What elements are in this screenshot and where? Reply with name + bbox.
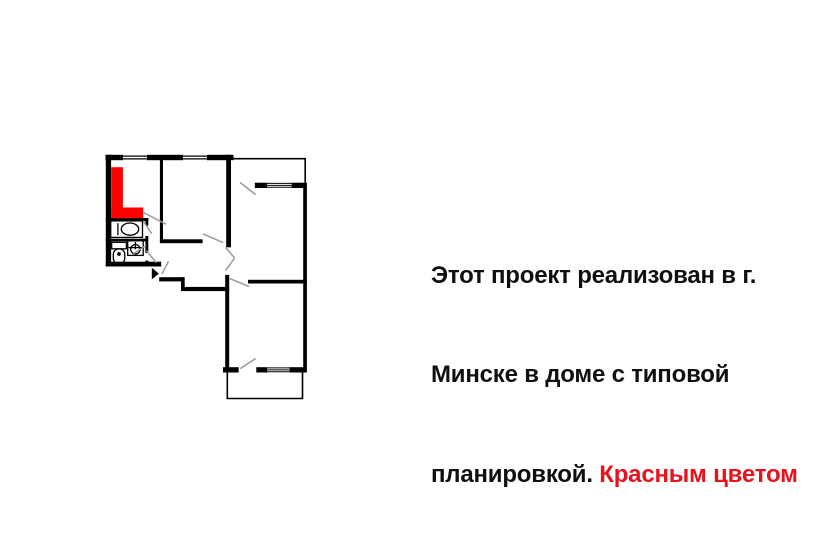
annotation-text: Этот проект реализован в г. Минске в дом… xyxy=(431,192,816,547)
marker-horizontal-bar xyxy=(111,208,143,219)
toilet-icon xyxy=(112,242,127,263)
door-swing-icon xyxy=(240,182,256,194)
window-icon xyxy=(267,183,292,187)
wall xyxy=(145,261,148,267)
product-location-marker xyxy=(111,167,143,218)
wall xyxy=(226,155,231,248)
balcony-outline xyxy=(227,372,302,398)
door-swing-icon xyxy=(230,278,250,286)
window-icon xyxy=(183,156,208,159)
wall xyxy=(181,287,228,291)
wall xyxy=(147,155,183,160)
wall xyxy=(106,262,161,267)
door-swing-icon xyxy=(226,247,235,258)
wall xyxy=(292,183,304,188)
wall xyxy=(106,155,111,267)
bathroom-fixtures xyxy=(111,221,144,264)
wall xyxy=(160,158,163,242)
wall xyxy=(255,183,267,188)
door-swing-icon xyxy=(226,258,235,271)
annotation-line-3-red-highlight: Красным цветом xyxy=(599,461,797,488)
entrance-arrow-icon xyxy=(152,268,159,280)
wall xyxy=(303,183,307,373)
wall xyxy=(160,239,203,243)
page: Этот проект реализован в г. Минске в дом… xyxy=(0,0,820,547)
wall xyxy=(223,367,239,372)
annotation-line-1: Этот проект реализован в г. xyxy=(431,259,816,292)
wall xyxy=(159,277,183,281)
annotation-line-3-black: планировкой. xyxy=(431,461,599,488)
bathtub-icon xyxy=(111,221,143,238)
door-swings xyxy=(133,182,256,368)
balcony-outline xyxy=(231,159,305,183)
floor-plan xyxy=(0,0,420,547)
balconies xyxy=(227,159,305,399)
door-swing-icon xyxy=(240,358,256,368)
wall xyxy=(290,367,307,372)
door-swing-icon xyxy=(162,261,169,274)
window-icon xyxy=(267,368,290,372)
window-icon xyxy=(123,156,148,159)
wall xyxy=(248,280,307,284)
annotation-line-3: планировкой. Красным цветом xyxy=(431,458,816,491)
door-swing-icon xyxy=(203,234,223,243)
annotation-line-2: Минске в доме с типовой xyxy=(431,358,816,391)
wall xyxy=(256,367,267,372)
